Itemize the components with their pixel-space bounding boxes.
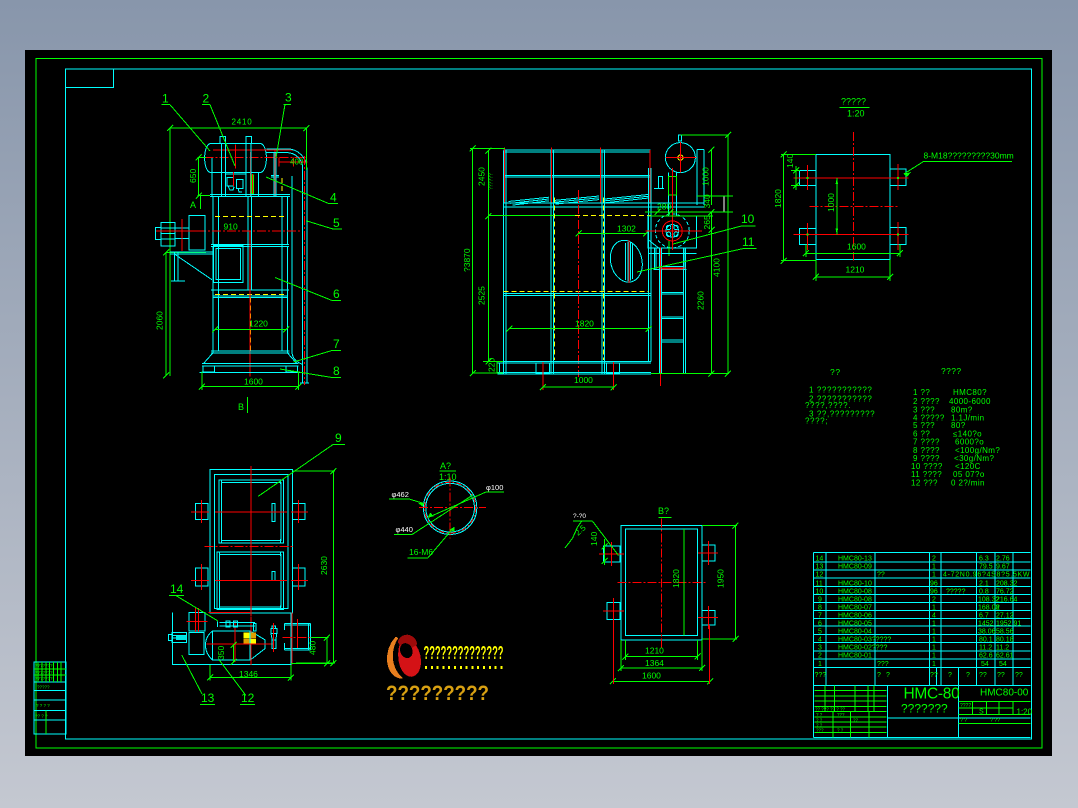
svg-text:265: 265 [702,215,712,229]
svg-text:???: ??? [815,672,827,679]
svg-text:1: 1 [932,653,936,660]
svg-text:?????: ????? [841,97,866,107]
svg-text:910: 910 [224,222,238,232]
svg-text:1:20: 1:20 [847,109,865,119]
svg-text:12: 12 [241,691,255,705]
svg-text:HMC80-13: HMC80-13 [838,556,872,563]
svg-text:?????: ????? [946,588,966,595]
svg-text:1: 1 [932,628,936,635]
svg-text:HMC80-05: HMC80-05 [838,620,872,627]
svg-text:9: 9 [818,596,822,603]
svg-text:14: 14 [170,582,184,596]
svg-text:?: ? [886,672,890,679]
svg-text:????;: ????; [805,417,828,426]
svg-text:5: 5 [818,628,822,635]
svg-text:7: 7 [333,337,340,351]
svg-text:2: 2 [996,605,1000,612]
svg-text:4100: 4100 [712,258,722,277]
svg-text:? ??: ? ?? [990,718,1000,724]
svg-text:350: 350 [216,646,226,660]
svg-text:???????: ??????? [35,663,53,668]
svg-text:1: 1 [932,605,936,612]
svg-text:???????: ??????? [901,702,948,716]
svg-text:φ440: φ440 [396,525,413,534]
svg-text:??????????????: ?????????????? [424,643,504,663]
svg-text:216.64: 216.64 [996,596,1018,603]
svg-text:4: 4 [932,613,936,620]
svg-text:1 ???????????: 1 ??????????? [809,386,872,395]
svg-text:2630: 2630 [319,556,329,575]
svg-text:62.61: 62.61 [996,653,1014,660]
svg-text:1210: 1210 [645,646,664,656]
svg-text:B?: B? [658,506,669,516]
svg-text:208.32: 208.32 [996,581,1018,588]
svg-text:1210: 1210 [846,264,865,274]
svg-text:1:20: 1:20 [1017,708,1033,717]
svg-text:1: 1 [818,661,822,668]
svg-text:1: 1 [932,637,936,644]
svg-text:2: 2 [203,92,210,106]
svg-text:????: ???? [960,703,971,709]
svg-text:HMC80-02????: HMC80-02???? [838,645,888,652]
svg-text:?: ? [877,672,881,679]
svg-text:0 2?/min: 0 2?/min [951,478,985,487]
svg-text:???????: ??????? [35,676,53,681]
svg-text:? ?: ? ? [837,728,844,733]
svg-text:?? ??? ?? ? ??: ?? ??? ?? ? ?? [815,707,846,712]
svg-text:2.1: 2.1 [979,581,989,588]
svg-text:1220: 1220 [249,319,268,329]
svg-text:??: ?? [853,717,859,722]
svg-text:10: 10 [741,212,755,226]
svg-text:11: 11 [742,235,755,249]
svg-text:6.3: 6.3 [979,556,989,563]
svg-text:6: 6 [818,620,822,627]
svg-text:1302: 1302 [617,224,636,234]
svg-text:B: B [238,402,244,412]
svg-text:3: 3 [285,91,292,105]
svg-text:1 ??: 1 ?? [913,388,930,397]
svg-text:1600: 1600 [642,671,661,681]
svg-text:???: ??? [877,661,889,668]
svg-text:2.76: 2.76 [996,556,1010,563]
svg-text:8: 8 [818,605,822,612]
svg-text:80.1: 80.1 [979,637,993,644]
svg-text:9: 9 [335,431,342,445]
svg-text:?: ? [966,672,970,679]
svg-text:38.06: 38.06 [978,628,996,635]
svg-text:1: 1 [932,645,936,652]
svg-text:2: 2 [818,653,822,660]
svg-text:2: 2 [932,556,936,563]
svg-text:11.2: 11.2 [979,645,992,652]
svg-text:62.6: 62.6 [979,653,993,660]
svg-text:8-M18?????????30mm: 8-M18?????????30mm [924,151,1014,161]
svg-text:2410: 2410 [232,118,253,127]
svg-text:2260: 2260 [696,291,706,310]
svg-text:12 ???: 12 ??? [911,478,938,487]
svg-text:5: 5 [333,216,340,230]
svg-text:1952.91: 1952.91 [996,620,1021,627]
svg-text:96: 96 [930,588,938,595]
svg-text:96: 96 [930,581,938,588]
svg-text:φ462: φ462 [392,490,409,499]
svg-text:??: ?? [997,672,1005,679]
svg-text:1000: 1000 [574,375,593,385]
svg-text:58.56: 58.56 [996,628,1014,635]
svg-text:??: ?? [979,672,987,679]
svg-text:1820: 1820 [773,189,783,208]
svg-text:79.5: 79.5 [979,564,993,571]
svg-text:S: S [979,709,984,716]
svg-text:?????????: ????????? [386,682,489,705]
svg-text:480: 480 [308,641,318,655]
svg-text:2525: 2525 [477,286,487,305]
svg-text:12: 12 [816,572,824,579]
svg-text:4-72N0.96?4S8?5.5KW: 4-72N0.96?4S8?5.5KW [943,572,1030,579]
svg-text:HMC80-09: HMC80-09 [838,564,872,571]
svg-text:140: 140 [785,154,795,168]
svg-text:7: 7 [818,613,822,620]
svg-text:13: 13 [816,564,824,571]
svg-text:400: 400 [290,158,304,167]
svg-text:2450: 2450 [477,167,487,186]
svg-text:HMC80-04: HMC80-04 [838,628,872,635]
svg-text:???: ??? [837,712,845,717]
svg-text:?3870: ?3870 [462,248,472,272]
svg-text:220: 220 [487,358,497,372]
svg-text:HMC80-08: HMC80-08 [838,596,872,603]
svg-text:HMC80-01: HMC80-01 [838,653,872,660]
svg-text:14: 14 [816,556,824,563]
svg-text:HMC-80: HMC-80 [904,686,961,703]
svg-text:φ100: φ100 [486,483,503,492]
svg-text:HMC80-08: HMC80-08 [838,588,872,595]
svg-text:? ? ? ?: ? ? ? ? [36,703,50,708]
svg-text:76.72: 76.72 [996,588,1014,595]
svg-text:54: 54 [999,661,1007,668]
svg-text:1: 1 [162,92,169,106]
svg-text:???: ??? [816,728,824,733]
svg-text:6.7: 6.7 [979,613,989,620]
svg-text:3: 3 [818,645,822,652]
svg-text:13: 13 [201,691,215,705]
svg-text:11.2: 11.2 [996,645,1009,652]
svg-text:? ?: ? ? [960,718,967,724]
svg-text:140: 140 [589,532,599,546]
svg-text:0.8: 0.8 [979,588,989,595]
svg-text:??: ?? [1015,672,1023,679]
svg-text:??: ?? [930,672,938,679]
svg-text:??????: ?????? [489,173,495,190]
svg-text:1364: 1364 [645,658,664,668]
svg-text:1820: 1820 [575,319,594,329]
svg-text:HMC80-06: HMC80-06 [838,613,872,620]
svg-text:1: 1 [932,620,936,627]
svg-text:A?: A? [440,461,451,471]
svg-text:80.18: 80.18 [996,637,1014,644]
svg-text:??: ?? [830,367,841,377]
svg-text:1600: 1600 [244,377,263,387]
svg-text:?????: ????? [37,685,50,690]
svg-text:4: 4 [818,637,822,644]
svg-text:650: 650 [188,169,198,183]
svg-text:1: 1 [932,661,936,668]
svg-text:27.12: 27.12 [996,613,1014,620]
svg-text:1600: 1600 [847,242,866,252]
svg-text:?: ? [948,672,952,679]
svg-text:???????: ??????? [35,670,53,675]
svg-text:HMC80-10: HMC80-10 [838,581,872,588]
svg-text:2060: 2060 [155,311,165,330]
svg-text:10: 10 [816,588,824,595]
svg-text:2: 2 [932,596,936,603]
svg-text:1:10: 1:10 [439,472,457,482]
svg-text:11: 11 [816,581,823,588]
svg-text:1000: 1000 [826,193,836,212]
svg-text:HMC80-00: HMC80-00 [980,688,1029,699]
svg-text:1452.: 1452. [978,620,996,627]
svg-text:????: ???? [941,366,962,376]
svg-text:8: 8 [333,364,340,378]
svg-text:1: 1 [932,564,936,571]
svg-text:1950: 1950 [716,569,726,588]
svg-text:? ?: ? ? [816,712,823,717]
svg-text:54: 54 [981,661,989,668]
svg-text:HMC80?: HMC80? [953,388,987,397]
svg-text:?? ? ?: ?? ? ? [35,714,48,719]
svg-text:A: A [190,200,196,210]
svg-text:6: 6 [333,287,340,301]
svg-text:HMC80-07: HMC80-07 [838,605,872,612]
svg-text:??: ?? [877,572,885,579]
svg-text:1000: 1000 [701,167,711,186]
svg-text:HMC80-03?????: HMC80-03????? [838,637,891,644]
svg-text:?-?0: ?-?0 [573,513,586,520]
svg-text:1820: 1820 [671,569,681,588]
svg-text:1: 1 [932,572,936,579]
svg-text:9.67: 9.67 [996,564,1010,571]
svg-text:4: 4 [330,191,337,205]
